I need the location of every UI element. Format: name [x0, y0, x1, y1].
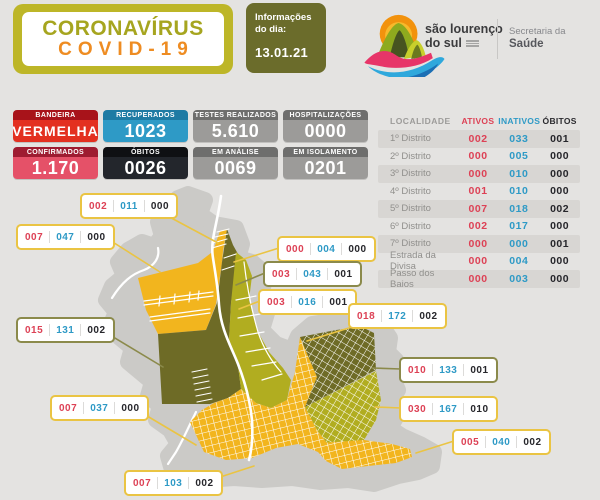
callout-value: 007 — [25, 232, 43, 243]
table-cell: 004 — [498, 255, 539, 267]
callout-value: 131 — [56, 325, 74, 336]
col-header-ativos: ATIVOS — [458, 116, 499, 126]
table-row: 2º Distrito000005000 — [378, 148, 580, 166]
table-cell: 018 — [498, 203, 539, 215]
callout-value: 002 — [419, 311, 437, 322]
map-callout-label: 015131002 — [16, 317, 115, 343]
table-cell: 033 — [498, 133, 539, 145]
callout-separator — [296, 268, 297, 280]
table-cell: 4º Distrito — [378, 186, 458, 197]
table-cell: 017 — [498, 220, 539, 232]
table-cell: 000 — [539, 255, 580, 267]
header-divider — [497, 19, 498, 59]
callout-value: 015 — [25, 325, 43, 336]
info-label-line2: do dia: — [255, 24, 326, 36]
stat-card-value: 0201 — [283, 157, 368, 179]
stat-card-label: CONFIRMADOS — [13, 147, 98, 157]
callout-separator — [80, 324, 81, 336]
stat-card-value: 5.610 — [193, 120, 278, 142]
map-callout-label: 005040002 — [452, 429, 551, 455]
table-cell: 001 — [539, 133, 580, 145]
table-cell: 1º Distrito — [378, 133, 458, 144]
map-streets — [144, 229, 282, 402]
col-header-localidade: LOCALIDADE — [378, 116, 458, 126]
callout-separator — [463, 364, 464, 376]
callout-value: 018 — [357, 311, 375, 322]
bulletin-date: 13.01.21 — [255, 45, 326, 60]
callout-value: 005 — [461, 437, 479, 448]
table-cell: 5º Distrito — [378, 203, 458, 214]
callout-value: 040 — [492, 437, 510, 448]
callout-separator — [157, 477, 158, 489]
table-row: 5º Distrito007018002 — [378, 200, 580, 218]
table-cell: 001 — [539, 238, 580, 250]
callout-value: 010 — [470, 404, 488, 415]
info-date-box: Informações do dia: 13.01.21 — [246, 3, 326, 73]
stat-card-label: TESTES REALIZADOS — [193, 110, 278, 120]
stat-card-label: BANDEIRA — [13, 110, 98, 120]
district-strip-yellow — [212, 229, 227, 262]
callout-value: 103 — [164, 478, 182, 489]
callout-separator — [291, 296, 292, 308]
table-cell: 000 — [458, 273, 499, 285]
stat-card-value: 1023 — [103, 120, 188, 142]
map-road-main — [212, 196, 252, 460]
table-cell: 001 — [458, 185, 499, 197]
callout-separator — [113, 200, 114, 212]
callout-value: 016 — [298, 297, 316, 308]
table-cell: 002 — [458, 220, 499, 232]
map-callout-label: 007037000 — [50, 395, 149, 421]
covid-title-badge: CORONAVÍRUS COVID-19 — [13, 4, 233, 74]
callout-value: 000 — [87, 232, 105, 243]
district-yellow-upper — [138, 253, 222, 334]
stats-grid: BANDEIRAVERMELHARECUPERADOS1023TESTES RE… — [13, 110, 368, 179]
callout-value: 003 — [272, 269, 290, 280]
callout-value: 043 — [303, 269, 321, 280]
map-road-southwest — [168, 412, 196, 464]
callout-value: 167 — [439, 404, 457, 415]
table-cell: 000 — [539, 273, 580, 285]
table-body: 1º Distrito0020330012º Distrito000005000… — [378, 130, 580, 288]
callout-separator — [322, 296, 323, 308]
map-callout-label: 007103002 — [124, 470, 223, 496]
callout-separator — [83, 402, 84, 414]
stat-card: ÓBITOS0026 — [103, 147, 188, 179]
callout-separator — [49, 324, 50, 336]
district-yellow-boot — [318, 440, 412, 469]
table-cell: 7º Distrito — [378, 238, 458, 249]
callout-value: 011 — [120, 201, 138, 212]
table-cell: 007 — [458, 203, 499, 215]
district-green-east — [305, 371, 381, 443]
stat-card: RECUPERADOS1023 — [103, 110, 188, 142]
callout-value: 047 — [56, 232, 74, 243]
callout-separator — [432, 364, 433, 376]
stat-card: EM ANÁLISE0069 — [193, 147, 278, 179]
table-row: 3º Distrito000010000 — [378, 165, 580, 183]
table-cell: 000 — [458, 168, 499, 180]
table-row: Passo dos Baios000003000 — [378, 270, 580, 288]
city-tagline-marks — [466, 39, 479, 48]
district-olive-main — [158, 303, 241, 404]
district-yellow-lower — [190, 337, 327, 460]
callout-separator — [341, 243, 342, 255]
stat-card-label: HOSPITALIZAÇÕES — [283, 110, 368, 120]
table-cell: 010 — [498, 185, 539, 197]
stat-card-value: 0000 — [283, 120, 368, 142]
table-cell: 2º Distrito — [378, 151, 458, 162]
callout-value: 004 — [317, 244, 335, 255]
secretariat-line1: Secretaria da — [509, 26, 566, 37]
badge-title-line1: CORONAVÍRUS — [42, 18, 203, 39]
callout-value: 133 — [439, 365, 457, 376]
city-name-line2: do sul — [425, 37, 503, 51]
stat-card: EM ISOLAMENTO0201 — [283, 147, 368, 179]
map-callout-label: 010133001 — [399, 357, 498, 383]
callout-value: 007 — [59, 403, 77, 414]
callout-value: 000 — [348, 244, 366, 255]
table-cell: 6º Distrito — [378, 221, 458, 232]
map-callout-label: 003016001 — [258, 289, 357, 315]
table-cell: 000 — [458, 150, 499, 162]
table-cell: 000 — [539, 150, 580, 162]
callout-separator — [49, 231, 50, 243]
badge-title-line2: COVID-19 — [58, 40, 194, 60]
stat-card: BANDEIRAVERMELHA — [13, 110, 98, 142]
secretariat-label: Secretaria da Saúde — [509, 26, 566, 50]
callout-separator — [463, 403, 464, 415]
callout-value: 010 — [408, 365, 426, 376]
stat-card-value: 1.170 — [13, 157, 98, 179]
table-cell: 010 — [498, 168, 539, 180]
callout-value: 000 — [121, 403, 139, 414]
callout-value: 001 — [329, 297, 347, 308]
stat-card-value: 0026 — [103, 157, 188, 179]
table-cell: 000 — [498, 238, 539, 250]
table-row: 4º Distrito001010000 — [378, 183, 580, 201]
table-cell: Passo dos Baios — [378, 268, 458, 290]
callout-value: 172 — [388, 311, 406, 322]
table-cell: 3º Distrito — [378, 168, 458, 179]
district-strip-olive — [217, 229, 238, 303]
table-header-row: LOCALIDADE ATIVOS INATIVOS ÓBITOS — [378, 112, 580, 130]
callout-separator — [327, 268, 328, 280]
table-cell: 000 — [539, 185, 580, 197]
stat-card-label: EM ISOLAMENTO — [283, 147, 368, 157]
stat-card-value: 0069 — [193, 157, 278, 179]
callout-separator — [412, 310, 413, 322]
table-cell: 000 — [458, 238, 499, 250]
callout-value: 007 — [133, 478, 151, 489]
stat-card: HOSPITALIZAÇÕES0000 — [283, 110, 368, 142]
callout-value: 002 — [523, 437, 541, 448]
col-header-obitos: ÓBITOS — [539, 116, 580, 126]
localities-table: LOCALIDADE ATIVOS INATIVOS ÓBITOS 1º Dis… — [378, 112, 580, 288]
table-cell: 000 — [458, 255, 499, 267]
callout-separator — [188, 477, 189, 489]
info-label-line1: Informações — [255, 12, 326, 24]
secretariat-line2: Saúde — [509, 38, 566, 50]
callout-separator — [80, 231, 81, 243]
col-header-inativos: INATIVOS — [498, 116, 539, 126]
stat-card-label: EM ANÁLISE — [193, 147, 278, 157]
stat-card-label: ÓBITOS — [103, 147, 188, 157]
map-callout-label: 003043001 — [263, 261, 362, 287]
stat-card: TESTES REALIZADOS5.610 — [193, 110, 278, 142]
callout-separator — [432, 403, 433, 415]
stat-card: CONFIRMADOS1.170 — [13, 147, 98, 179]
map-road-left — [112, 248, 158, 298]
callout-value: 000 — [286, 244, 304, 255]
callout-value: 030 — [408, 404, 426, 415]
callout-separator — [144, 200, 145, 212]
covid-title-inner: CORONAVÍRUS COVID-19 — [22, 12, 224, 66]
city-name: são lourenço do sul — [425, 23, 503, 51]
callout-separator — [114, 402, 115, 414]
map-callout-label: 007047000 — [16, 224, 115, 250]
callout-value: 037 — [90, 403, 108, 414]
city-name-line1: são lourenço — [425, 23, 503, 37]
map-callout-label: 002011000 — [80, 193, 178, 219]
map-callout-label: 000004000 — [277, 236, 376, 262]
callout-value: 002 — [87, 325, 105, 336]
table-cell: 003 — [498, 273, 539, 285]
stat-card-value: VERMELHA — [13, 120, 98, 142]
callout-value: 001 — [470, 365, 488, 376]
map-callout-label: 030167010 — [399, 396, 498, 422]
table-cell: 005 — [498, 150, 539, 162]
table-row: 6º Distrito002017000 — [378, 218, 580, 236]
callout-separator — [381, 310, 382, 322]
callout-value: 000 — [151, 201, 169, 212]
callout-value: 002 — [195, 478, 213, 489]
callout-separator — [310, 243, 311, 255]
stat-card-label: RECUPERADOS — [103, 110, 188, 120]
table-cell: 000 — [539, 220, 580, 232]
table-cell: 002 — [539, 203, 580, 215]
callout-value: 003 — [267, 297, 285, 308]
callout-value: 002 — [89, 201, 107, 212]
table-cell: 000 — [539, 168, 580, 180]
covid-bulletin: CORONAVÍRUS COVID-19 Informações do dia:… — [0, 0, 600, 500]
table-row: 1º Distrito002033001 — [378, 130, 580, 148]
callout-value: 001 — [334, 269, 352, 280]
callout-separator — [516, 436, 517, 448]
table-cell: 002 — [458, 133, 499, 145]
callout-separator — [485, 436, 486, 448]
district-olive-east — [300, 327, 376, 407]
map-callout-label: 018172002 — [348, 303, 447, 329]
